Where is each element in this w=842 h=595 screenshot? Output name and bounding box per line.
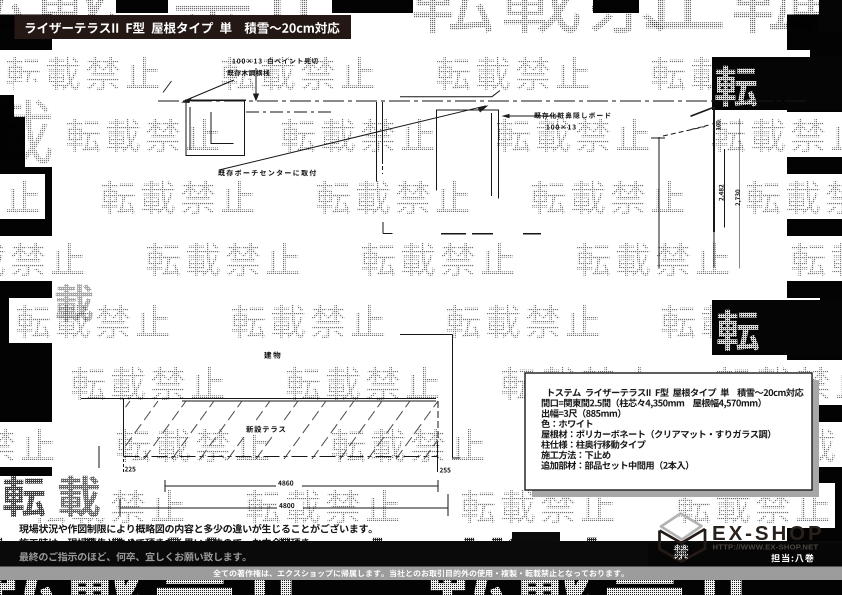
svg-text:HTTP://WWW.EX-SHOP.NET: HTTP://WWW.EX-SHOP.NET	[713, 543, 819, 552]
